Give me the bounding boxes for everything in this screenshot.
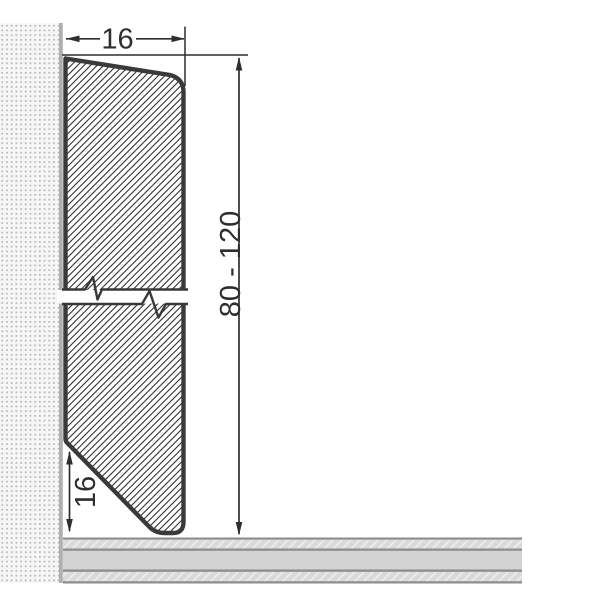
skirting-profile-technical-drawing: 16 80 - 120 16 [0, 0, 604, 604]
dimension-label-top-width: 16 [101, 24, 133, 56]
floor-border-line [63, 549, 522, 551]
floor-middle-layer [63, 551, 522, 570]
floor-top-layer [63, 540, 522, 549]
dimension-label-height: 80 - 120 [215, 211, 247, 317]
floor-border-line [63, 538, 522, 540]
break-gap [57, 290, 191, 304]
wall-stipple-texture [0, 23, 59, 583]
dimension-label-bottom-bevel: 16 [70, 476, 102, 508]
wall-section [0, 23, 63, 583]
floor-bottom-layer [63, 572, 522, 581]
floor-border-line [63, 581, 522, 583]
diagram-canvas: 16 80 - 120 16 [0, 0, 604, 604]
floor-border-line [63, 570, 522, 572]
floor-section [63, 538, 522, 584]
